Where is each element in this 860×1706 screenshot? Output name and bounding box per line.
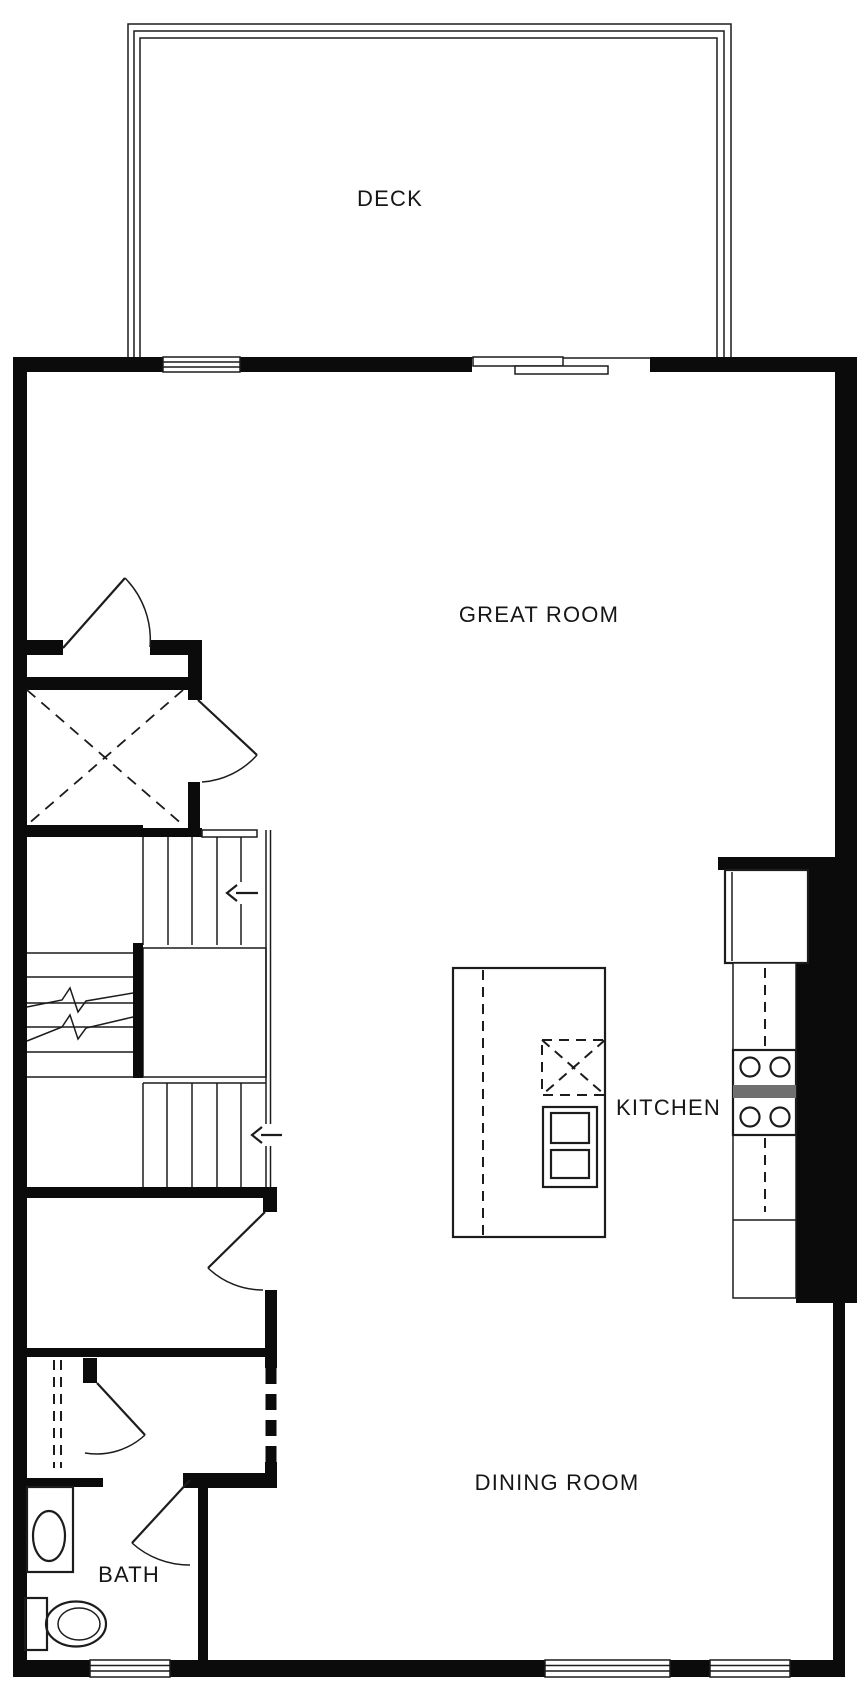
bath-door-swing-lower — [132, 1480, 190, 1565]
break-line — [27, 1015, 133, 1041]
dining-room-label: DINING ROOM — [475, 1470, 640, 1495]
deck-railing — [128, 24, 731, 357]
linen-closet-dashed — [54, 1360, 61, 1468]
island-double-appliance — [543, 1107, 597, 1187]
entry-door-swing — [63, 578, 150, 648]
vanity-with-oval-sink — [27, 1487, 73, 1572]
window-top — [163, 357, 240, 372]
sliding-glass-door — [472, 357, 650, 374]
refrigerator — [725, 870, 808, 963]
floor-plan-page: DECK GREAT ROOM — [0, 0, 860, 1706]
hall-walls — [25, 1187, 277, 1488]
stair-direction-arrow-lower — [249, 1124, 285, 1146]
range-cooktop — [733, 1050, 796, 1135]
window-bottom-right — [710, 1660, 790, 1677]
kitchen-label: KITCHEN — [616, 1095, 721, 1120]
window-bottom-left — [90, 1660, 170, 1677]
bath-door-swing-upper — [85, 1383, 145, 1454]
kitchen-wall-counters — [718, 857, 857, 1303]
break-line — [27, 988, 133, 1012]
window-bottom-middle — [545, 1660, 670, 1677]
bath-label: BATH — [98, 1562, 160, 1587]
range-handle-band — [733, 1085, 796, 1098]
coat-closet-x — [27, 690, 183, 825]
kitchen-island — [453, 968, 605, 1237]
entry-closet-walls — [13, 640, 202, 837]
deck-label: DECK — [357, 186, 423, 211]
stair-direction-arrow-upper — [224, 882, 262, 904]
toilet — [25, 1598, 106, 1650]
floor-plan-svg: DECK GREAT ROOM — [0, 0, 860, 1706]
great-room-label: GREAT ROOM — [459, 602, 619, 627]
closet-door-swing — [198, 700, 257, 782]
hall-door-swing — [208, 1212, 265, 1290]
